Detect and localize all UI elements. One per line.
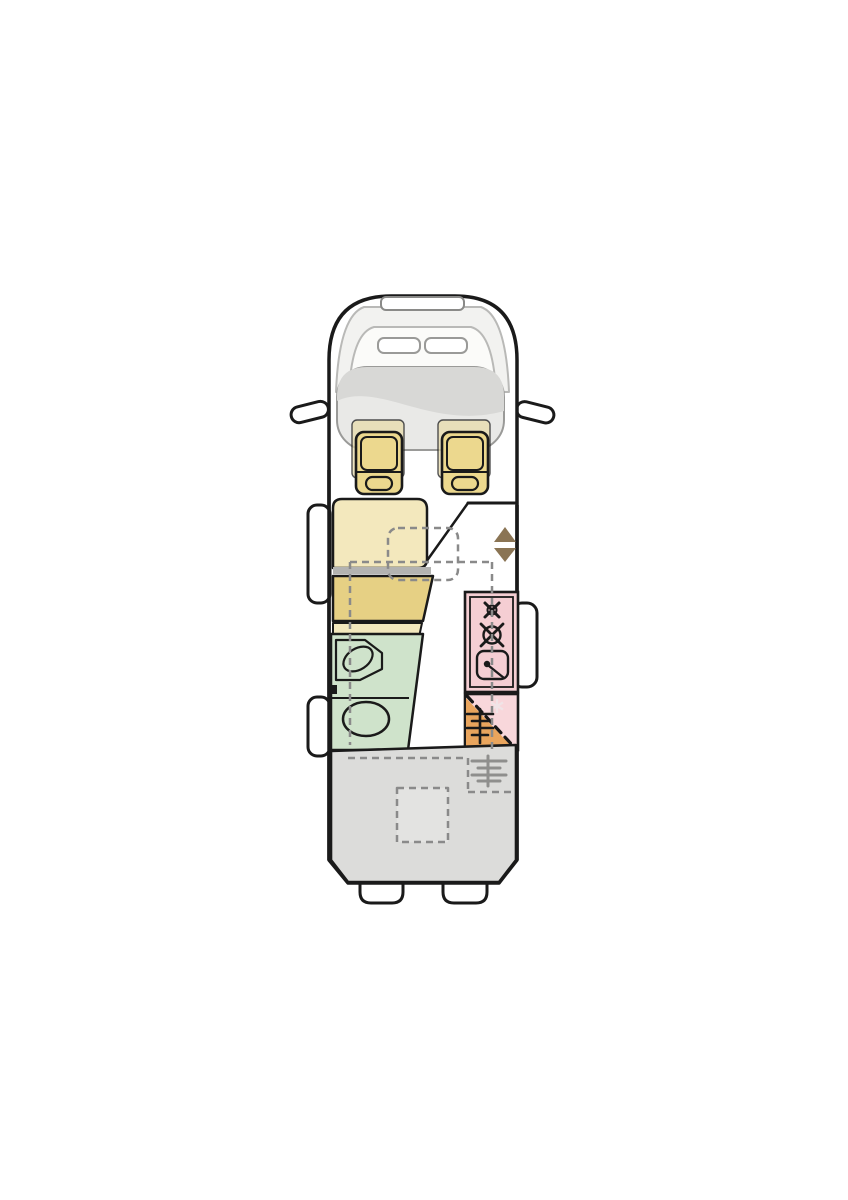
skylight-outline <box>397 788 448 842</box>
left-window-rear <box>308 697 330 756</box>
hood-vent-left <box>378 338 420 353</box>
hood-vent-right <box>425 338 467 353</box>
dinette-bench-rear <box>333 576 433 621</box>
bench-backrest-divider <box>333 567 431 574</box>
bathroom-door-pivot <box>328 685 337 694</box>
motorhome-floorplan <box>0 0 848 1200</box>
passenger-seat <box>438 420 490 494</box>
bathroom-floor <box>331 634 423 750</box>
right-mirror-icon <box>515 400 556 425</box>
left-window-front <box>308 505 330 603</box>
rear-bed <box>331 745 516 882</box>
left-mirror-icon <box>289 400 330 425</box>
dinette-bench-front <box>333 499 427 568</box>
bathroom <box>328 634 423 750</box>
cab-roof-panel <box>381 297 464 310</box>
dinette <box>333 499 433 637</box>
floorplan-canvas <box>0 0 848 1200</box>
driver-seat <box>352 420 404 494</box>
